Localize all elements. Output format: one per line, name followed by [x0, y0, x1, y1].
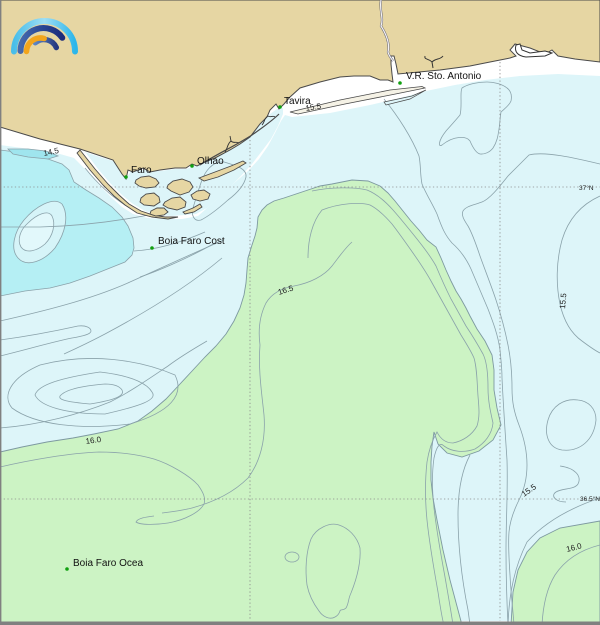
svg-text:15.5: 15.5: [558, 292, 568, 309]
svg-text:36.5°N: 36.5°N: [580, 495, 600, 503]
svg-text:Faro: Faro: [131, 165, 152, 176]
svg-text:Olhao: Olhao: [197, 156, 224, 167]
svg-text:Boia Faro Ocea: Boia Faro Ocea: [73, 558, 143, 569]
svg-text:37°N: 37°N: [579, 184, 594, 192]
svg-text:Boia Faro Cost: Boia Faro Cost: [158, 236, 225, 247]
svg-text:V.R. Sto. Antonio: V.R. Sto. Antonio: [406, 71, 482, 82]
